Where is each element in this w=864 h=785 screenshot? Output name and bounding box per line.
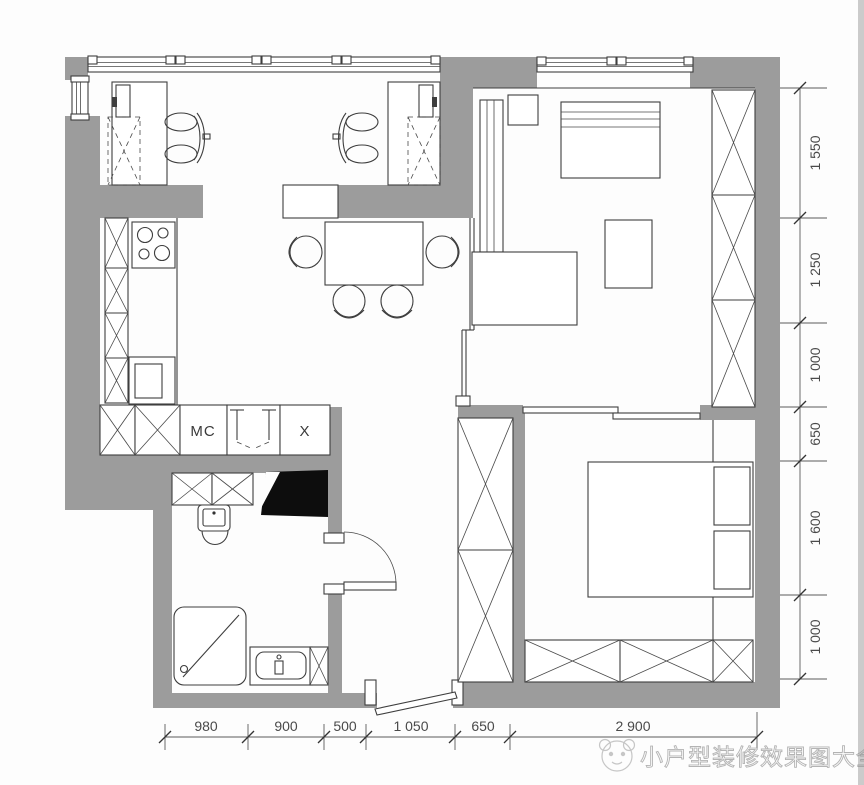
label-mc: MC <box>190 423 215 440</box>
dim-bottom-2: 500 <box>333 718 357 734</box>
dim-right-4: 1 600 <box>807 510 823 545</box>
living-wardrobe-east <box>712 90 755 407</box>
kitchen-sink <box>129 357 175 404</box>
bathroom <box>172 470 396 685</box>
bathroom-sink <box>250 647 312 685</box>
dim-right-1: 1 250 <box>807 252 823 287</box>
bathroom-door <box>324 532 396 594</box>
dim-bottom-5: 2 900 <box>615 718 650 734</box>
toilet <box>198 505 230 545</box>
office-chair-left <box>165 113 210 163</box>
bedroom-sliding-door <box>523 407 700 419</box>
dim-bottom-3: 1 050 <box>393 718 428 734</box>
bedroom <box>458 407 753 682</box>
dim-right-3: 650 <box>807 422 823 446</box>
hall-wardrobe <box>458 418 513 682</box>
living-partition <box>456 218 474 406</box>
bed <box>588 420 753 640</box>
utility-row: MC X <box>100 405 330 455</box>
watermark: 小户型装修效果图大全 <box>600 740 864 772</box>
coffee-table <box>605 220 652 288</box>
floor-plan-screenshot: MC X <box>0 0 864 785</box>
window-band-north <box>88 56 440 72</box>
dim-right-0: 1 550 <box>807 135 823 170</box>
ottoman <box>472 252 577 325</box>
dimension-chain-right: 1 550 1 250 1 000 650 1 600 1 000 <box>780 82 827 685</box>
bedroom-wardrobe-south <box>525 640 753 682</box>
watermark-text: 小户型装修效果图大全 <box>640 744 864 770</box>
label-x: X <box>299 423 310 440</box>
living-room <box>472 90 755 407</box>
dim-right-2: 1 000 <box>807 347 823 382</box>
dim-right-5: 1 000 <box>807 619 823 654</box>
dim-bottom-4: 650 <box>471 718 495 734</box>
bathroom-vanity <box>172 473 253 505</box>
watermark-mascot-icon <box>600 740 635 772</box>
dim-bottom-1: 900 <box>274 718 298 734</box>
dining-cabinet <box>283 185 338 218</box>
window-west <box>71 76 89 120</box>
image-edge-strip <box>858 0 864 785</box>
office-chair-right <box>333 113 378 163</box>
desk-left <box>112 82 167 185</box>
dining-table <box>289 222 459 318</box>
shower-tray <box>174 607 246 685</box>
dim-bottom-0: 980 <box>194 718 218 734</box>
kitchen-stove <box>132 222 175 268</box>
floor-plan-canvas: MC X <box>0 0 864 785</box>
duct-shaft <box>259 470 328 517</box>
bathroom-side-cabinet <box>310 647 328 685</box>
entry-door <box>365 680 463 715</box>
